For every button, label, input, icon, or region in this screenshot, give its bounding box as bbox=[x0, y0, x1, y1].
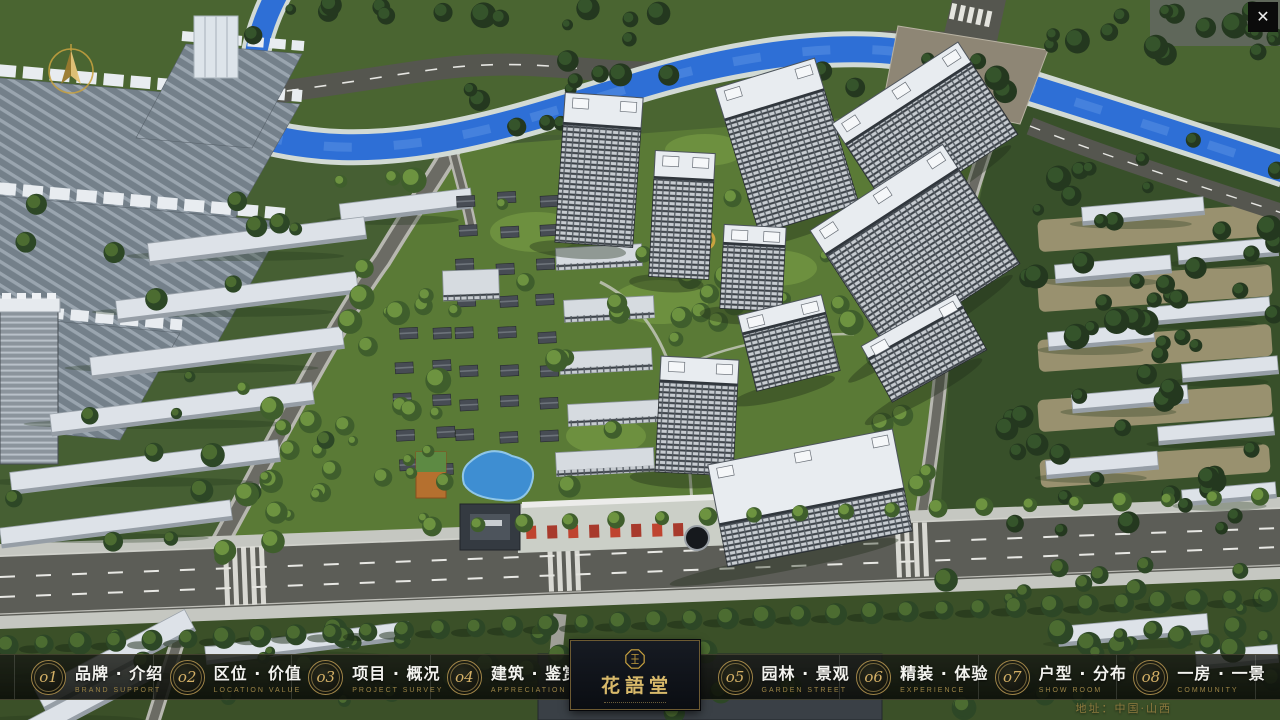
menu-sublabel: APPRECIATION bbox=[491, 687, 569, 694]
menu-label: 一房 · 一景 bbox=[1177, 660, 1255, 684]
menu-sublabel: COMMUNITY bbox=[1177, 687, 1255, 694]
menu-sublabel: BRAND SUPPORT bbox=[75, 687, 153, 694]
menu-item-brand[interactable]: o1 品牌 · 介绍 BRAND SUPPORT bbox=[15, 655, 153, 699]
logo-tagline bbox=[604, 702, 666, 703]
menu-label: 项目 · 概况 bbox=[352, 660, 430, 684]
menu-number-badge: o5 bbox=[718, 660, 753, 695]
menu-label: 建筑 · 鉴赏 bbox=[491, 660, 569, 684]
menu-number-badge: o2 bbox=[170, 660, 205, 695]
close-button[interactable]: ✕ bbox=[1248, 2, 1278, 32]
address-label: 地址：中国·山西 bbox=[1076, 700, 1173, 716]
menu-label: 园林 · 景观 bbox=[762, 660, 840, 684]
menu-item-garden[interactable]: o5 园林 · 景观 GARDEN STREET bbox=[702, 655, 840, 699]
menu-number-badge: o7 bbox=[995, 660, 1030, 695]
north-compass-icon bbox=[42, 42, 100, 100]
bar-spacer bbox=[1255, 655, 1280, 699]
menu-item-location[interactable]: o2 区位 · 价值 LOCATION VALUE bbox=[153, 655, 292, 699]
menu-item-interior[interactable]: o6 精装 · 体验 EXPERIENCE bbox=[839, 655, 978, 699]
menu-label: 户型 · 分布 bbox=[1039, 660, 1117, 684]
presentation-window: ✕ o1 品牌 · 介绍 BRAND SUPPORT o2 区位 · 价值 LO… bbox=[0, 0, 1280, 720]
menu-number-badge: o3 bbox=[308, 660, 343, 695]
project-logo[interactable]: 花語堂 bbox=[570, 640, 700, 710]
menu-item-floorplan[interactable]: o7 户型 · 分布 SHOW ROOM bbox=[978, 655, 1117, 699]
seal-icon bbox=[624, 648, 646, 670]
menu-label: 品牌 · 介绍 bbox=[75, 660, 153, 684]
menu-item-views[interactable]: o8 一房 · 一景 COMMUNITY bbox=[1116, 655, 1255, 699]
aerial-site-plan bbox=[0, 0, 1280, 720]
menu-sublabel: EXPERIENCE bbox=[900, 687, 978, 694]
menu-label: 精装 · 体验 bbox=[900, 660, 978, 684]
menu-number-badge: o4 bbox=[447, 660, 482, 695]
menu-number-badge: o6 bbox=[856, 660, 891, 695]
menu-bar: o1 品牌 · 介绍 BRAND SUPPORT o2 区位 · 价值 LOCA… bbox=[0, 654, 1280, 700]
menu-sublabel: PROJECT SURVEY bbox=[352, 687, 430, 694]
menu-sublabel: LOCATION VALUE bbox=[214, 687, 292, 694]
menu-item-project[interactable]: o3 项目 · 概况 PROJECT SURVEY bbox=[291, 655, 430, 699]
logo-slot: 花語堂 bbox=[569, 655, 702, 699]
menu-sublabel: SHOW ROOM bbox=[1039, 687, 1117, 694]
pool bbox=[463, 451, 533, 500]
menu-item-architecture[interactable]: o4 建筑 · 鉴赏 APPRECIATION bbox=[430, 655, 569, 699]
bar-spacer bbox=[0, 655, 15, 699]
menu-sublabel: GARDEN STREET bbox=[762, 687, 840, 694]
menu-label: 区位 · 价值 bbox=[214, 660, 292, 684]
entrance-plaza bbox=[685, 526, 709, 550]
menu-number-badge: o8 bbox=[1133, 660, 1168, 695]
menu-number-badge: o1 bbox=[31, 660, 66, 695]
logo-title: 花語堂 bbox=[596, 671, 673, 698]
